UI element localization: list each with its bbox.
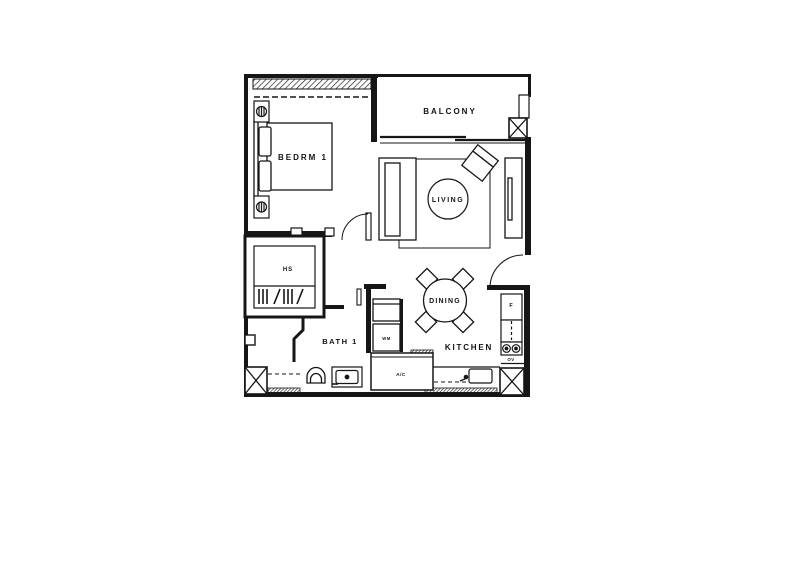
bedroom-label: BEDRM 1 <box>278 153 328 162</box>
bath-door-leaf <box>357 289 361 305</box>
toilet <box>307 368 325 384</box>
washing-machine-label: WM <box>382 336 390 341</box>
sofa <box>379 158 416 240</box>
bath-vanity <box>332 367 362 387</box>
aircon-ledge <box>371 353 433 390</box>
balcony-column <box>519 95 529 118</box>
bedroom-window-band <box>253 79 371 89</box>
pillow <box>259 161 271 191</box>
nightstand-top <box>254 101 269 122</box>
balcony-label: BALCONY <box>423 107 477 116</box>
kitchen-label: KITCHEN <box>445 343 493 352</box>
x-marker-bottom-right <box>500 368 524 395</box>
bedroom-door-leaf <box>366 213 371 240</box>
floor-plan-page: BEDRM 1 BALCONY LIVING DINING KITCHEN BA… <box>0 0 800 566</box>
bedroom-balcony-divider-wall <box>371 74 377 142</box>
household-shelter-label: HS <box>283 267 293 273</box>
nightstand-bottom <box>254 196 269 218</box>
dining-label: DINING <box>429 298 461 305</box>
corridor-wall-vertical <box>366 284 371 353</box>
armchair <box>462 145 498 181</box>
oven-label: OV <box>507 357 514 362</box>
tv <box>508 178 512 220</box>
living-right-wall <box>525 137 531 255</box>
balcony-top-wall <box>377 74 531 77</box>
basin-drain <box>345 375 349 379</box>
shelf-cabinet <box>373 299 400 321</box>
bed-headboard <box>254 120 258 198</box>
x-marker-balcony <box>509 118 527 138</box>
entry-door <box>487 255 525 290</box>
bedroom-door-swing-arc <box>342 214 368 240</box>
pillow <box>259 127 271 156</box>
bath-label: BATH 1 <box>322 337 358 346</box>
bath-chamfer-wall <box>294 317 303 362</box>
entry-door-swing-arc <box>490 255 523 288</box>
door-jamb <box>325 228 334 236</box>
bedroom-top-wall <box>244 74 378 78</box>
household-shelter <box>245 236 324 317</box>
bedroom-door <box>342 213 371 240</box>
kitchen-window-sill <box>425 388 497 394</box>
x-marker-bottom-left <box>245 367 267 394</box>
bath-window-sill <box>268 388 300 394</box>
bath-wall-vent <box>245 335 255 345</box>
balcony-sliding-door <box>380 137 525 143</box>
living-label: LIVING <box>432 197 464 204</box>
kitchen-counter <box>433 367 500 383</box>
balcony-right-wall <box>528 74 531 97</box>
aircon-ledge-label: A/C <box>396 372 406 378</box>
floor-plan-drawing: BEDRM 1 BALCONY LIVING DINING KITCHEN BA… <box>0 0 800 566</box>
kitchen-sink <box>469 369 492 383</box>
kitchen-right-wall <box>524 285 530 397</box>
tv-console <box>505 158 522 238</box>
